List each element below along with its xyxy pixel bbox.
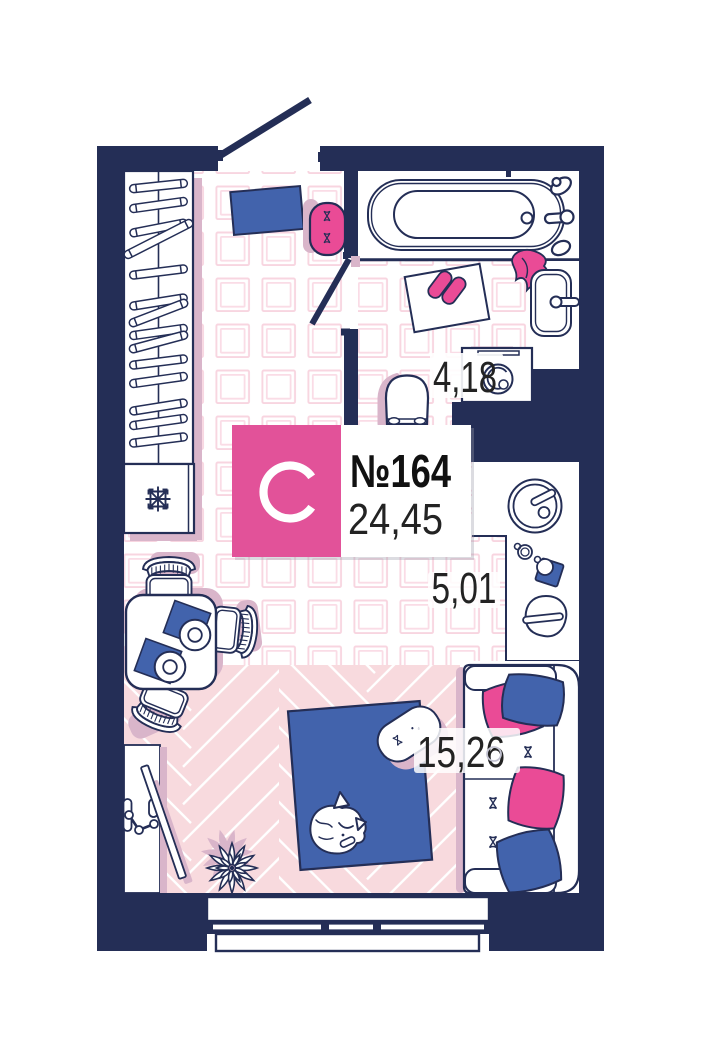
svg-text:24,45: 24,45 [348,495,443,544]
svg-text:15,26: 15,26 [417,728,505,777]
svg-text:5,01: 5,01 [432,564,497,613]
svg-text:№164: №164 [350,445,451,497]
svg-text:4,18: 4,18 [433,353,497,402]
